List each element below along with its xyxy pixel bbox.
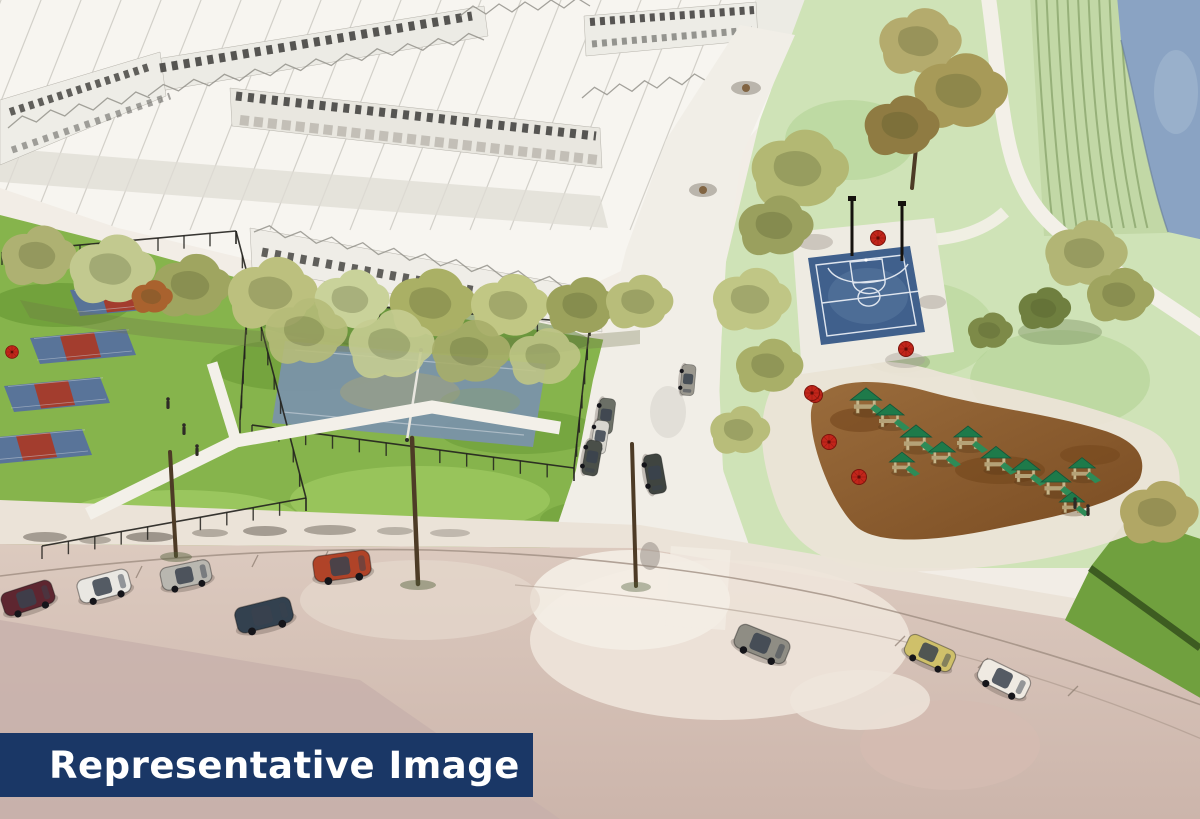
picnic-umbrella xyxy=(805,386,820,401)
rendering-stage: Representative Image xyxy=(0,0,1200,819)
pedestrian xyxy=(195,444,199,456)
pedestrian xyxy=(182,423,186,435)
picnic-umbrella xyxy=(6,346,19,359)
representative-image-banner: Representative Image xyxy=(0,733,533,797)
picnic-umbrella xyxy=(899,342,914,357)
picnic-umbrella xyxy=(822,435,837,450)
pedestrian xyxy=(166,397,170,409)
banner-label: Representative Image xyxy=(49,744,520,787)
site-rendering-canvas xyxy=(0,0,1200,819)
picnic-umbrella xyxy=(871,231,886,246)
picnic-umbrella xyxy=(852,470,867,485)
